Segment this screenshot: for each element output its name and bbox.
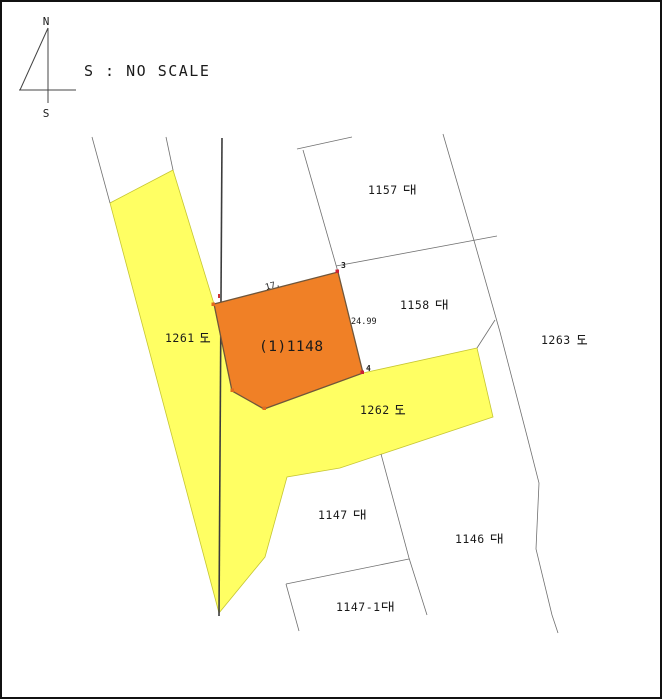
road-label-1262: 1262	[360, 403, 390, 417]
road-label-1261: 1261	[165, 331, 195, 345]
boundary-line	[381, 454, 427, 615]
hangul-dae-glyph	[355, 510, 365, 519]
hangul-do-glyph	[578, 336, 587, 344]
dimension-label-24-99: 24.99	[351, 317, 377, 327]
parcel-label-1157: 1157	[368, 183, 398, 197]
boundary-line	[297, 137, 352, 149]
vertex-label-3: 3	[341, 261, 346, 270]
boundary-line	[286, 559, 409, 584]
hangul-dae-glyph	[383, 602, 393, 611]
cadastral-map: N S S : NO SCALE 17. (1)1148 24.99 3 4	[0, 0, 663, 700]
compass-north-label: N	[43, 15, 50, 28]
vertex-marker	[218, 294, 220, 298]
vertex-marker	[336, 270, 340, 274]
parcel-label-1147: 1147	[318, 508, 348, 522]
boundary-line	[303, 150, 338, 272]
hangul-dae-glyph	[437, 300, 447, 309]
compass-south-label: S	[43, 107, 50, 120]
hangul-dae-glyph	[492, 534, 502, 543]
scale-note: S : NO SCALE	[84, 62, 210, 80]
road-label-1263: 1263	[541, 333, 571, 347]
vertex-marker	[231, 389, 235, 393]
hangul-dae-glyph	[405, 185, 415, 194]
cadastral-map-page: N S S : NO SCALE 17. (1)1148 24.99 3 4	[0, 0, 663, 700]
boundary-line	[336, 236, 497, 266]
vertex-marker	[263, 407, 267, 411]
north-arrow: N S	[19, 15, 76, 120]
vertex-marker	[361, 371, 365, 375]
parcel-label-1147-1: 1147-1	[336, 600, 381, 614]
parcel-label-1146: 1146	[455, 532, 485, 546]
parcel-label-1158: 1158	[400, 298, 430, 312]
boundary-line	[92, 137, 110, 203]
boundary-line	[477, 320, 495, 348]
vertex-marker	[212, 303, 216, 307]
boundary-line	[166, 137, 173, 170]
subject-parcel-label: (1)1148	[259, 339, 324, 355]
boundary-line	[286, 584, 299, 631]
vertex-label-4: 4	[366, 364, 371, 373]
